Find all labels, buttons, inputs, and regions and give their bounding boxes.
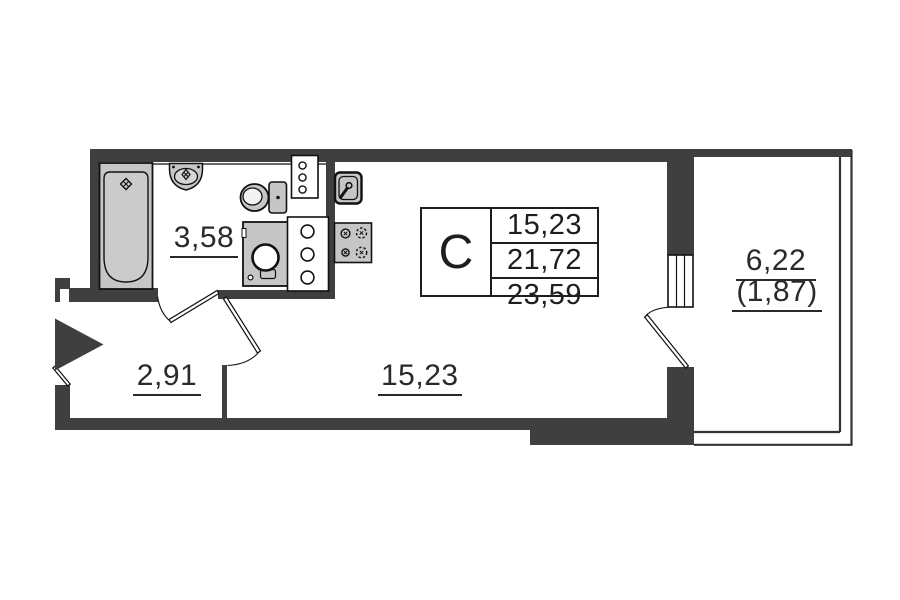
area-apartment-value: 21,72 — [492, 242, 597, 277]
area-living-value: 15,23 — [492, 209, 597, 242]
washing-machine-icon — [242, 222, 288, 286]
toilet-icon — [241, 182, 287, 213]
bathroom-door — [158, 291, 219, 323]
ventilation-shaft — [288, 156, 329, 292]
wall-balcony-lower — [667, 367, 694, 445]
room-label-bathroom: 3,58 — [170, 223, 238, 258]
door-leaf — [169, 291, 219, 323]
apartment-areas: 15,23 21,72 23,59 — [492, 209, 597, 295]
wall-balcony-top — [668, 149, 852, 157]
wall-left-upper — [90, 149, 99, 290]
wall-hall-partition — [222, 365, 227, 420]
kitchen-sink-icon — [335, 173, 362, 204]
room-label-balcony-reduced: (1,87) — [732, 277, 822, 312]
balcony-door — [645, 307, 689, 368]
room-label-hallway: 2,91 — [133, 361, 201, 396]
apartment-info-table: С 15,23 21,72 23,59 — [420, 207, 599, 297]
area-total-value: 23,59 — [492, 277, 597, 312]
door-leaf — [645, 315, 689, 368]
wall-balcony-upper — [667, 149, 694, 255]
door-leaf — [224, 297, 261, 353]
entrance-arrow-icon — [55, 319, 104, 371]
floor-plan: 3,58 2,91 15,23 6,22 (1,87) С 15,23 21,7… — [0, 0, 900, 600]
wall-bathroom-bottom-left — [69, 288, 158, 302]
wall-bottom — [55, 418, 694, 430]
stove-icon — [335, 223, 372, 263]
bathtub-icon — [100, 163, 153, 289]
wall-entrance-jamb — [55, 288, 60, 302]
wall-top — [90, 149, 668, 162]
wall-entrance-step — [55, 278, 70, 289]
bath-sink-icon — [170, 164, 203, 191]
window — [668, 255, 693, 307]
room-label-living-room: 15,23 — [378, 361, 462, 396]
apartment-type-label: С — [422, 209, 492, 295]
drum-icon — [253, 245, 279, 271]
interior-door — [224, 297, 261, 366]
